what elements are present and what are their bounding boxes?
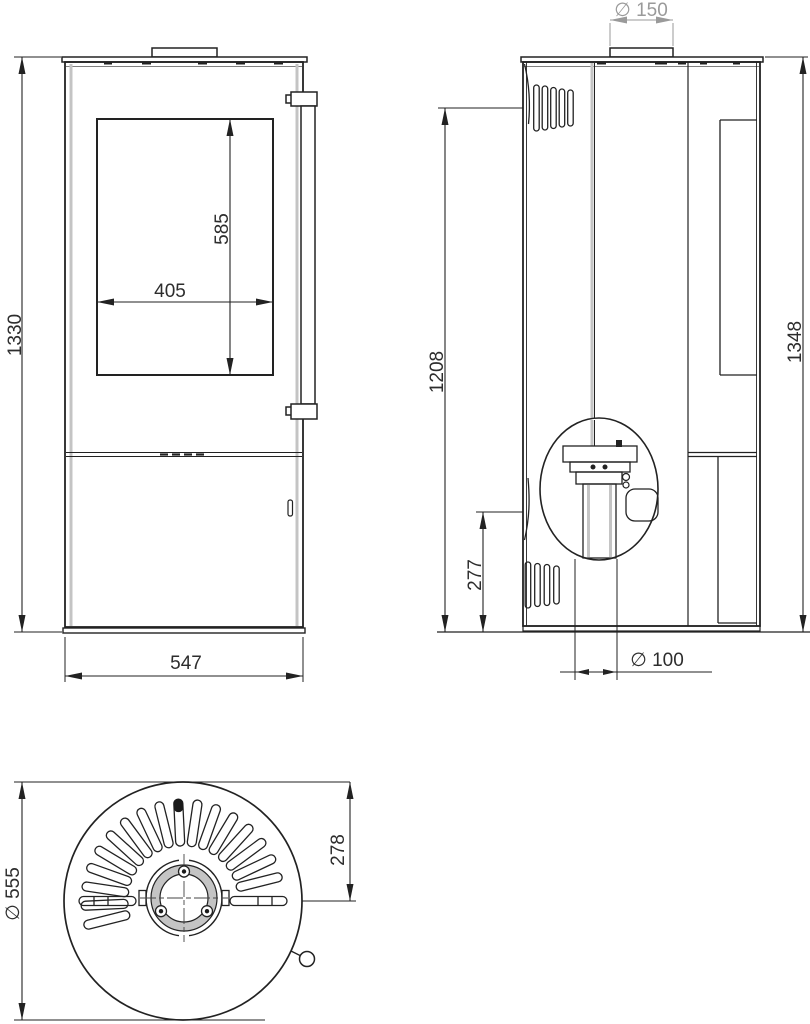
side-vent-slots-bottom: [525, 562, 559, 608]
top-view: [14, 782, 356, 1020]
label-rear-connection-diameter: ∅ 100: [630, 650, 684, 671]
side-front-panel: [688, 120, 757, 623]
label-glass-width: 405: [154, 281, 186, 302]
label-top-diameter: ∅ 555: [3, 867, 24, 921]
latch-recess: [288, 500, 293, 516]
front-bottom-plate: [63, 628, 305, 633]
side-top-curve: [525, 64, 530, 124]
front-flue-cap: [152, 48, 217, 57]
label-front-overall-height: 1330: [5, 314, 26, 356]
label-flue-center-offset: 278: [328, 834, 349, 866]
front-view: [14, 48, 317, 682]
label-side-overall-height: 1348: [785, 321, 806, 363]
glass-window: [97, 119, 273, 375]
label-flue-diameter: ∅ 150: [614, 0, 668, 21]
dim-side-left-height: [438, 108, 523, 632]
label-side-left-height: 1208: [427, 351, 448, 393]
label-front-overall-width: 547: [170, 653, 202, 674]
front-door-split: [66, 453, 302, 457]
label-rear-connection-height: 277: [465, 559, 486, 591]
flue-collar: [610, 48, 673, 57]
dim-flue-diameter: [610, 20, 673, 46]
detail-ellipse: [540, 418, 658, 560]
top-flue-collar: [139, 854, 229, 942]
side-vent-slots-top: [534, 85, 574, 131]
technical-drawing: 1330 585 405 547 ∅ 150 1208 1348 277 ∅ 1…: [0, 0, 810, 1024]
side-slot-right: [230, 897, 287, 906]
front-body: [65, 62, 303, 627]
door-handle: [286, 92, 317, 419]
top-knob: [291, 951, 315, 967]
vent-slot-marker: [174, 799, 184, 812]
label-glass-height: 585: [212, 213, 233, 245]
side-view: [437, 20, 810, 680]
dimension-labels: 1330 585 405 547 ∅ 150 1208 1348 277 ∅ 1…: [3, 0, 806, 921]
technical-drawing-page: 1330 585 405 547 ∅ 150 1208 1348 277 ∅ 1…: [0, 0, 810, 1024]
